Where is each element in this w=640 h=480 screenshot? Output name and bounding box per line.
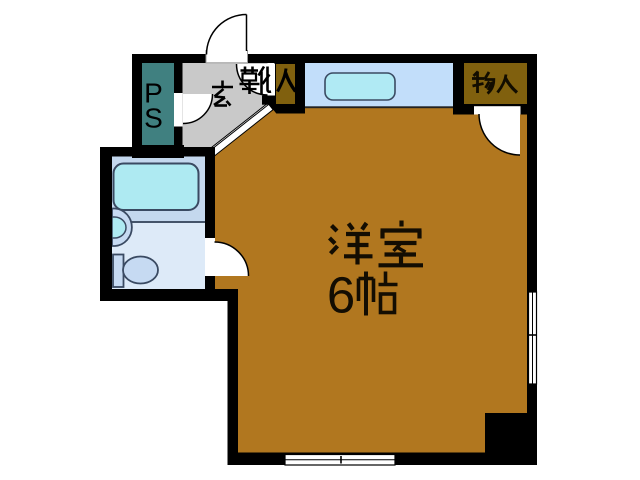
svg-text:6: 6 — [327, 267, 355, 324]
svg-text:S: S — [144, 103, 163, 134]
